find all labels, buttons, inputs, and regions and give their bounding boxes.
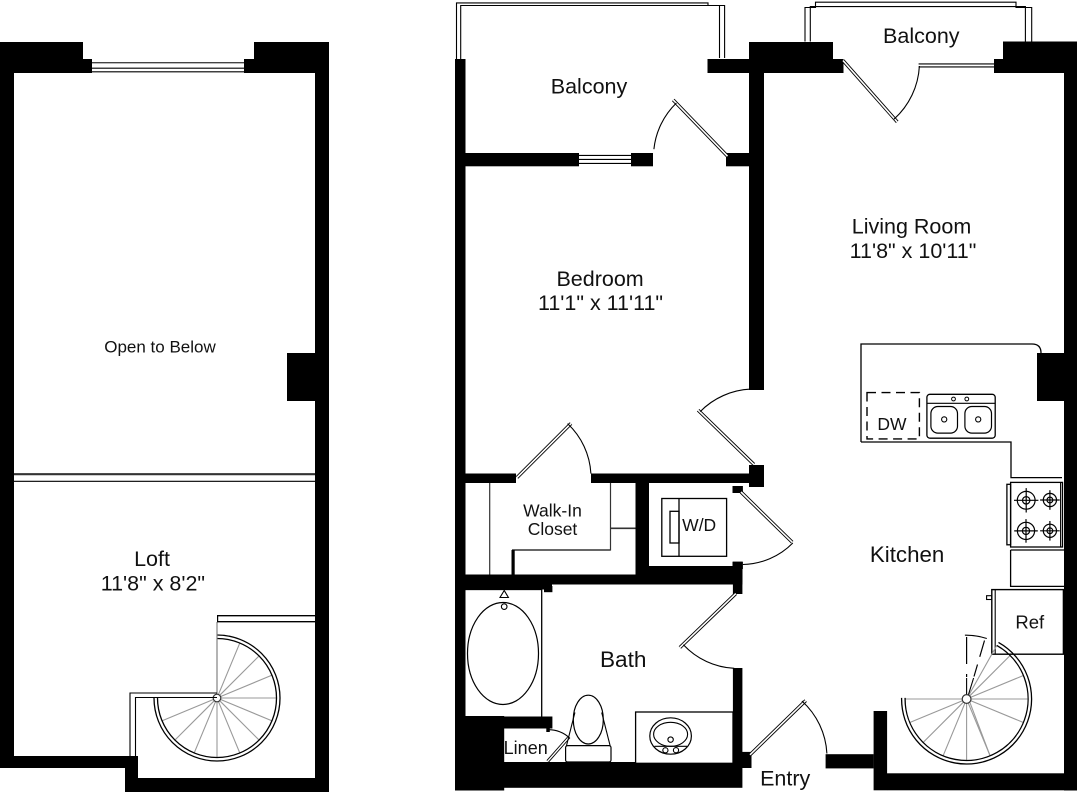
svg-text:Bath: Bath bbox=[600, 647, 646, 672]
svg-text:Balcony: Balcony bbox=[883, 24, 960, 48]
svg-text:Living Room: Living Room bbox=[852, 215, 972, 239]
svg-text:Bedroom: Bedroom bbox=[556, 267, 643, 291]
svg-text:11'8" x 8'2": 11'8" x 8'2" bbox=[101, 572, 205, 596]
svg-text:DW: DW bbox=[877, 414, 907, 434]
svg-text:Open to Below: Open to Below bbox=[104, 337, 216, 356]
svg-text:Entry: Entry bbox=[760, 767, 810, 791]
svg-text:Ref: Ref bbox=[1015, 612, 1045, 633]
svg-text:Kitchen: Kitchen bbox=[870, 542, 944, 567]
svg-text:Walk-In: Walk-In bbox=[523, 501, 582, 521]
svg-text:Loft: Loft bbox=[134, 547, 170, 571]
svg-text:Balcony: Balcony bbox=[551, 74, 628, 98]
svg-text:Closet: Closet bbox=[528, 519, 578, 539]
svg-text:11'8" x 10'11": 11'8" x 10'11" bbox=[850, 239, 977, 263]
svg-text:11'1" x 11'11": 11'1" x 11'11" bbox=[538, 291, 663, 315]
svg-text:Linen: Linen bbox=[504, 738, 548, 758]
svg-text:W/D: W/D bbox=[682, 515, 716, 535]
